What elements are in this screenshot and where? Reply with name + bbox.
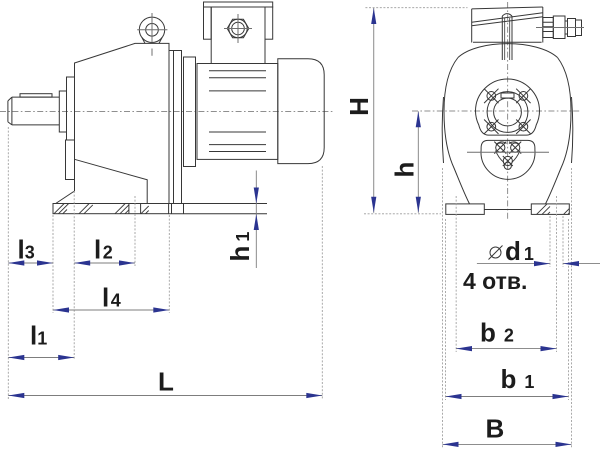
svg-text:4 отв.: 4 отв. — [463, 268, 527, 294]
svg-text:L: L — [158, 367, 174, 397]
svg-text:h: h — [389, 162, 419, 178]
svg-text:H: H — [344, 97, 374, 116]
svg-text:B: B — [486, 414, 505, 444]
